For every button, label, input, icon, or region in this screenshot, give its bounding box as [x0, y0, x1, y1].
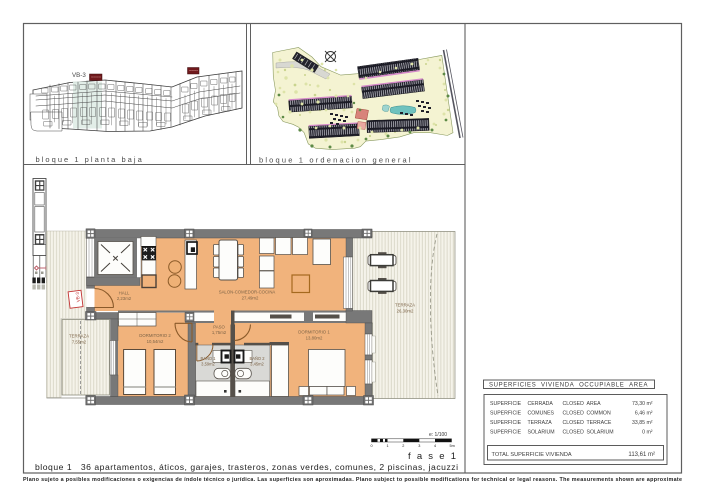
svg-text:SUPERFICIE: SUPERFICIE: [490, 429, 522, 435]
svg-text:73,30 m²: 73,30 m²: [632, 401, 653, 407]
svg-text:f a s e 1: f a s e 1: [408, 451, 459, 462]
svg-text:COMUNES: COMUNES: [528, 411, 555, 417]
svg-text:bloque 1 36 apartamentos, át: bloque 1 36 apartamentos, áticos, garaje…: [35, 462, 458, 472]
svg-text:CLOSED: CLOSED: [563, 429, 585, 435]
svg-text:0 m²: 0 m²: [642, 429, 653, 435]
svg-text:1,75m2: 1,75m2: [212, 330, 227, 335]
svg-text:SOLARIUM: SOLARIUM: [587, 429, 614, 435]
svg-text:BAÑO 2: BAÑO 2: [249, 356, 265, 361]
svg-text:PASO: PASO: [213, 325, 225, 330]
svg-text:3,59m2: 3,59m2: [201, 362, 215, 367]
svg-text:SOLARIUM: SOLARIUM: [528, 429, 555, 435]
svg-text:SUPERFICIES VIVIENDA OCCUPIA: SUPERFICIES VIVIENDA OCCUPIABLE AREA: [489, 383, 648, 389]
svg-text:10,54m2: 10,54m2: [147, 339, 164, 344]
svg-text:2: 2: [402, 444, 404, 448]
svg-text:DORMITORIO 2: DORMITORIO 2: [139, 333, 171, 338]
svg-text:TOTAL SUPERFICIE VIVIENDA: TOTAL SUPERFICIE VIVIENDA: [492, 452, 572, 458]
svg-text:DORMITORIO 1: DORMITORIO 1: [298, 330, 330, 335]
svg-text:0: 0: [371, 444, 373, 448]
svg-text:1: 1: [387, 444, 389, 448]
svg-text:Plano sujeto a posibles modifi: Plano sujeto a posibles modificaciones o…: [23, 477, 682, 483]
svg-text:HALL: HALL: [119, 291, 130, 296]
svg-text:26,30m2: 26,30m2: [397, 309, 414, 314]
svg-text:33,85 m²: 33,85 m²: [632, 420, 653, 426]
svg-text:e: 1/100: e: 1/100: [429, 432, 447, 438]
svg-text:27,49m2: 27,49m2: [242, 296, 259, 301]
svg-text:3: 3: [418, 444, 420, 448]
svg-text:3,45m2: 3,45m2: [250, 362, 264, 367]
svg-text:SUPERFICIE: SUPERFICIE: [490, 411, 522, 417]
svg-text:bloque 1 planta baja: bloque 1 planta baja: [36, 155, 144, 164]
svg-text:13,80m2: 13,80m2: [306, 336, 323, 341]
svg-text:113,61 m²: 113,61 m²: [628, 452, 655, 458]
svg-text:bloque 1 ordenacion general: bloque 1 ordenacion general: [259, 156, 412, 165]
svg-text:SUPERFICIE: SUPERFICIE: [490, 401, 522, 407]
svg-text:SUPERFICIE: SUPERFICIE: [490, 420, 522, 426]
svg-text:CERRADA: CERRADA: [528, 401, 554, 407]
svg-text:CLOSED: CLOSED: [563, 411, 585, 417]
svg-text:CLOSED: CLOSED: [563, 420, 585, 426]
svg-text:SALON-COMEDOR-COCINA: SALON-COMEDOR-COCINA: [219, 290, 276, 295]
svg-text:2,23m2: 2,23m2: [117, 296, 132, 301]
svg-text:6,46 m²: 6,46 m²: [635, 411, 653, 417]
svg-text:5m: 5m: [450, 444, 455, 448]
svg-text:4: 4: [434, 444, 436, 448]
svg-text:BAÑO 1: BAÑO 1: [200, 356, 216, 361]
svg-text:TERRAZA: TERRAZA: [528, 420, 553, 426]
svg-text:COMMON: COMMON: [587, 411, 611, 417]
svg-text:TERRAZA: TERRAZA: [395, 303, 415, 308]
svg-text:7,55m2: 7,55m2: [72, 340, 87, 345]
svg-text:AREA: AREA: [587, 401, 602, 407]
svg-text:VB-3: VB-3: [72, 72, 86, 79]
svg-text:CLOSED: CLOSED: [563, 401, 585, 407]
svg-text:TERRAZA: TERRAZA: [69, 334, 89, 339]
svg-text:TERRACE: TERRACE: [587, 420, 612, 426]
